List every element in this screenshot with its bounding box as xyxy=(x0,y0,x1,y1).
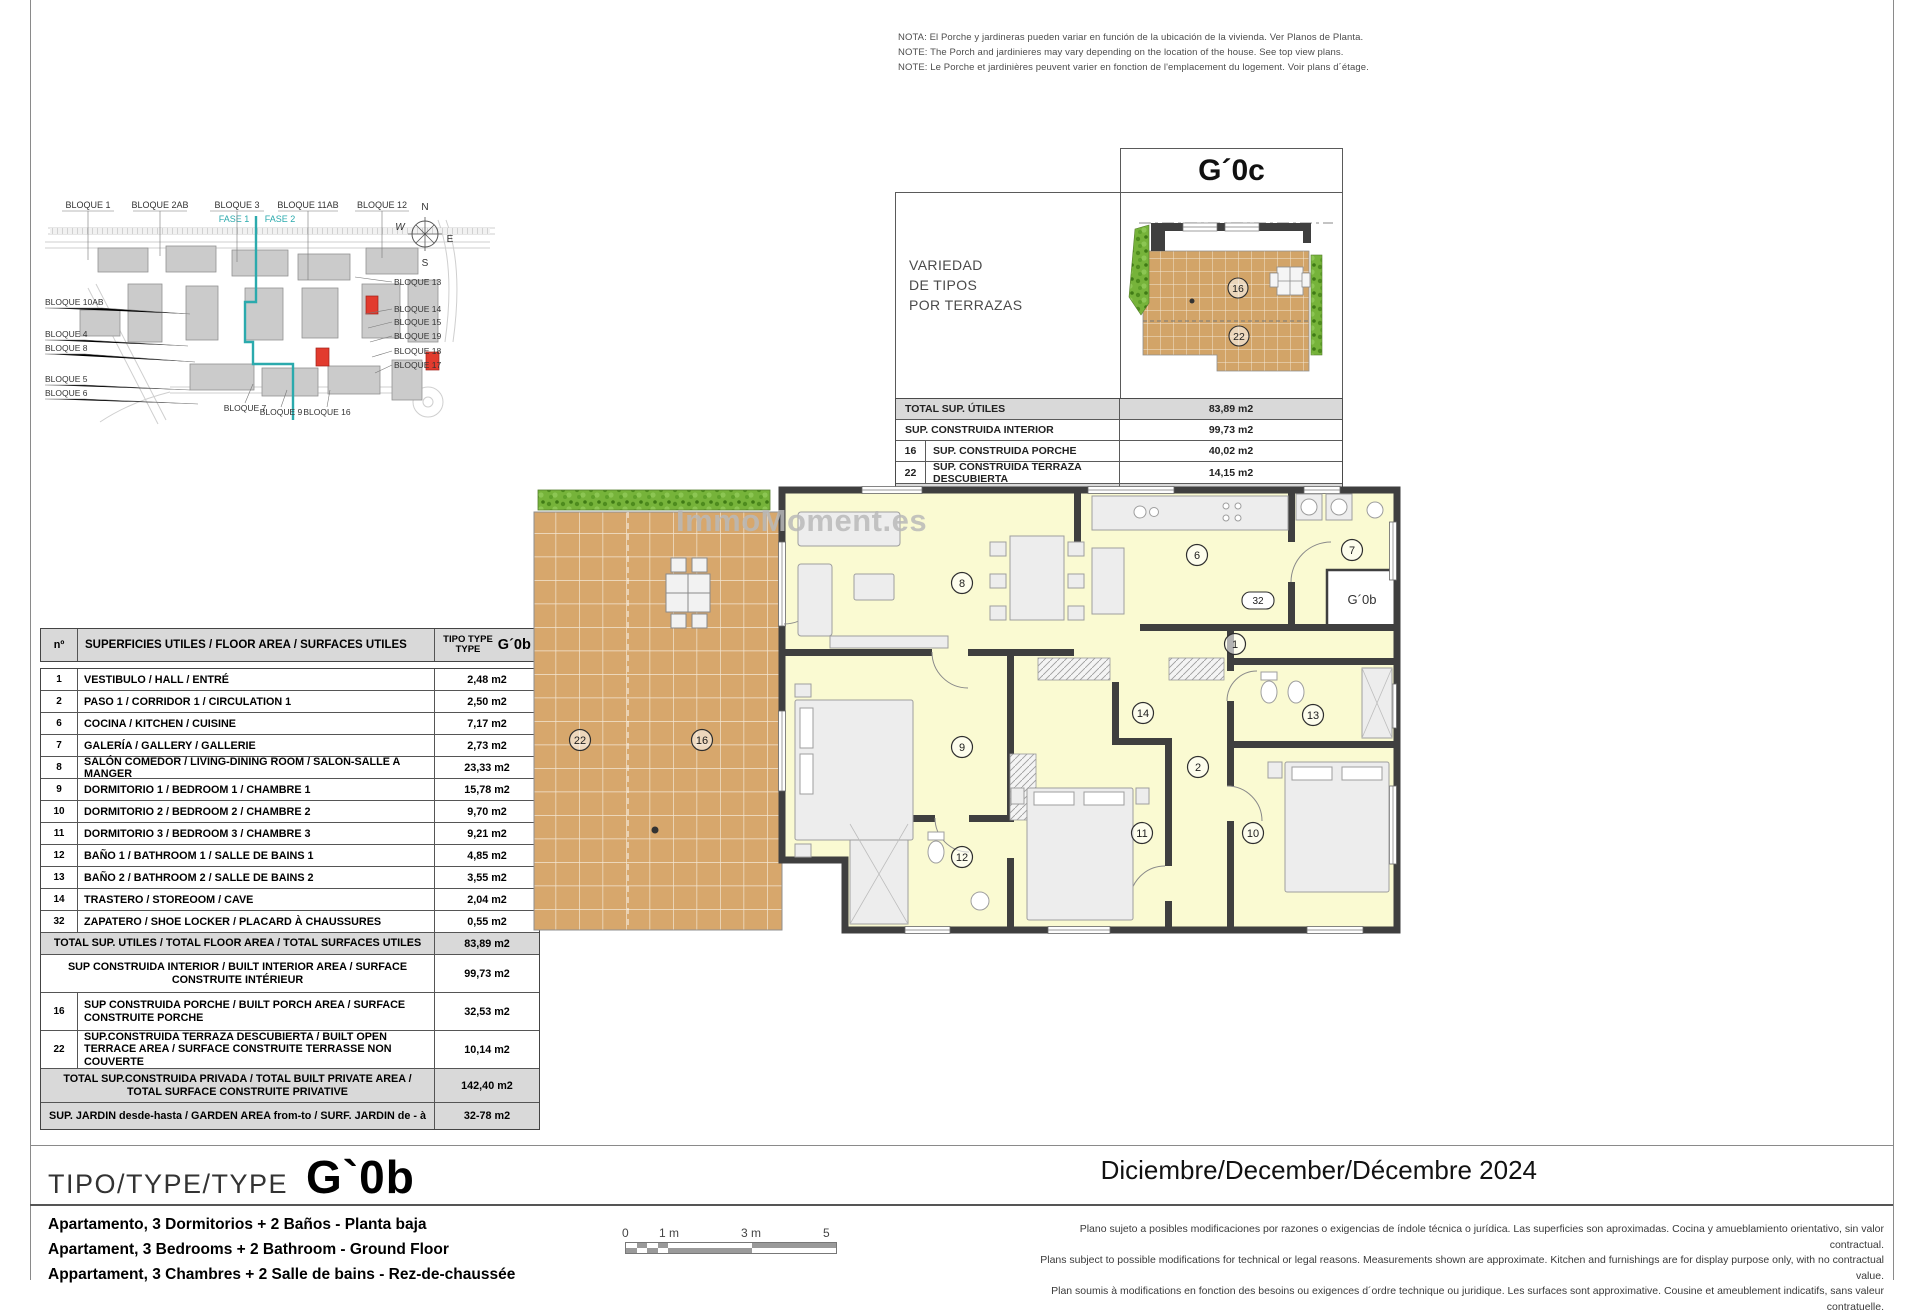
row-num: 7 xyxy=(41,735,78,756)
row-value: 2,50 m2 xyxy=(435,691,539,712)
marker-living: 8 xyxy=(952,573,973,594)
marker-bathroom2: 13 xyxy=(1303,705,1324,726)
variant-title: G´0c xyxy=(1120,148,1343,193)
pillow xyxy=(1292,767,1332,780)
site-plan: FASE 1 FASE 2 BLOQUE 1 BLOQUE 2AB BLOQUE… xyxy=(40,192,510,432)
bloque-3-label: BLOQUE 3 xyxy=(214,200,259,210)
disclaimer-en: Plans subject to possible modifications … xyxy=(1024,1253,1884,1284)
row-label: DORMITORIO 2 / BEDROOM 2 / CHAMBRE 2 xyxy=(78,801,435,822)
svg-text:9: 9 xyxy=(959,742,965,754)
description-en: Apartament, 3 Bedrooms + 2 Bathroom - Gr… xyxy=(48,1237,515,1262)
sheet-frame-left xyxy=(30,0,31,1280)
scale-tick-3m: 3 m xyxy=(741,1226,761,1240)
row-label: TOTAL SUP.CONSTRUIDA PRIVADA / TOTAL BUI… xyxy=(41,1069,435,1102)
description-es: Apartamento, 3 Dormitorios + 2 Baños - P… xyxy=(48,1212,515,1237)
chair xyxy=(990,574,1006,588)
marker-hall: 1 xyxy=(1225,634,1246,655)
row-num: 22 xyxy=(41,1031,78,1068)
bloque-2ab-label: BLOQUE 2AB xyxy=(131,200,188,210)
table-row-total: SUP. JARDIN desde-hasta / GARDEN AREA fr… xyxy=(41,1103,539,1129)
marker-corridor: 2 xyxy=(1188,757,1209,778)
row-label: BAÑO 1 / BATHROOM 1 / SALLE DE BAINS 1 xyxy=(78,845,435,866)
svg-text:8: 8 xyxy=(959,578,965,590)
disclaimer-es: Plano sujeto a posibles modificaciones p… xyxy=(1024,1222,1884,1253)
svg-text:1: 1 xyxy=(1232,639,1238,651)
table-row: 6COCINA / KITCHEN / CUISINE7,17 m2 xyxy=(41,713,539,735)
row-num: 13 xyxy=(41,867,78,888)
sheet-frame-right xyxy=(1893,0,1894,1280)
chair xyxy=(1068,606,1084,620)
row-label: TOTAL SUP. ÚTILES xyxy=(896,399,1120,419)
variant-subtitle-1: VARIEDAD xyxy=(909,255,1022,275)
compass-n: N xyxy=(421,202,428,213)
table-row-total: 16SUP CONSTRUIDA PORCHE / BUILT PORCH AR… xyxy=(41,993,539,1031)
row-label: SUP. CONSTRUIDA PORCHE xyxy=(926,441,1120,461)
bloque-15-label: BLOQUE 15 xyxy=(394,317,442,327)
row-value: 15,78 m2 xyxy=(435,779,539,800)
toilet-bath1 xyxy=(928,841,944,863)
bloque-13-label: BLOQUE 13 xyxy=(394,277,442,287)
mini-dot xyxy=(1190,299,1195,304)
header-label: SUPERFICIES UTILES / FLOOR AREA / SURFAC… xyxy=(78,629,435,661)
bloque-9-label: BLOQUE 9 xyxy=(260,407,303,417)
header-type-l2: TYPE xyxy=(443,645,493,655)
pillow xyxy=(800,754,813,794)
table-row: 11DORMITORIO 3 / BEDROOM 3 / CHAMBRE 39,… xyxy=(41,823,539,845)
table-row: 10DORMITORIO 2 / BEDROOM 2 / CHAMBRE 29,… xyxy=(41,801,539,823)
svg-text:6: 6 xyxy=(1194,550,1200,562)
chair xyxy=(1068,574,1084,588)
variant-subtitle-2: DE TIPOS xyxy=(909,275,1022,295)
bloque-11ab-label: BLOQUE 11AB xyxy=(277,200,338,210)
variant-g0c-box: G´0c VARIEDAD DE TIPOS POR TERRAZAS xyxy=(895,148,1343,505)
row-label: SUP.CONSTRUIDA TERRAZA DESCUBIERTA / BUI… xyxy=(78,1031,435,1068)
table-row-total: TOTAL SUP.CONSTRUIDA PRIVADA / TOTAL BUI… xyxy=(41,1069,539,1103)
porch-notes: NOTA: El Porche y jardineras pueden vari… xyxy=(898,30,1369,75)
row-value: 83,89 m2 xyxy=(435,933,539,954)
nightstand xyxy=(1136,788,1149,804)
mini-planter-right xyxy=(1311,255,1322,355)
row-label: PASO 1 / CORRIDOR 1 / CIRCULATION 1 xyxy=(78,691,435,712)
dryer-drum xyxy=(1331,499,1347,515)
gallery-sink xyxy=(1367,502,1383,518)
table-row: 22 SUP. CONSTRUIDA TERRAZA DESCUBIERTA 1… xyxy=(896,462,1342,484)
bloque-12-label: BLOQUE 12 xyxy=(357,200,407,210)
marker-bedroom1: 9 xyxy=(952,737,973,758)
table-row-total: 22SUP.CONSTRUIDA TERRAZA DESCUBIERTA / B… xyxy=(41,1031,539,1069)
table-row: 8SALÓN COMEDOR / LIVING-DINING ROOM / SA… xyxy=(41,757,539,779)
table-row: 1VESTIBULO / HALL / ENTRÉ2,48 m2 xyxy=(41,669,539,691)
scale-tick-1m: 1 m xyxy=(659,1226,679,1240)
pillow xyxy=(800,708,813,748)
row-num: 11 xyxy=(41,823,78,844)
row-value: 0,55 m2 xyxy=(435,911,539,932)
table-row: 2PASO 1 / CORRIDOR 1 / CIRCULATION 12,50… xyxy=(41,691,539,713)
nightstand xyxy=(1268,762,1282,778)
toilet-tank xyxy=(1261,672,1277,680)
marker-bedroom2: 10 xyxy=(1243,823,1264,844)
bloque-5-label: BLOQUE 5 xyxy=(45,374,88,384)
row-value: 83,89 m2 xyxy=(1120,399,1342,419)
row-value: 32-78 m2 xyxy=(435,1103,539,1129)
bloque-17-label: BLOQUE 17 xyxy=(394,360,442,370)
tv-unit xyxy=(830,636,948,648)
row-num: 6 xyxy=(41,713,78,734)
sofa-side xyxy=(798,564,832,636)
scale-bar-graphic xyxy=(625,1242,837,1254)
row-value: 40,02 m2 xyxy=(1120,441,1342,461)
svg-text:22: 22 xyxy=(574,735,586,747)
row-num: 14 xyxy=(41,889,78,910)
row-num: 16 xyxy=(41,993,78,1030)
row-value: 3,55 m2 xyxy=(435,867,539,888)
svg-text:32: 32 xyxy=(1252,596,1264,607)
table-row: SUP. CONSTRUIDA INTERIOR 99,73 m2 xyxy=(896,420,1342,441)
nightstand xyxy=(1011,788,1024,804)
row-value: 9,70 m2 xyxy=(435,801,539,822)
hob-burner xyxy=(1223,515,1229,521)
row-value: 32,53 m2 xyxy=(435,993,539,1030)
marker-porch: 16 xyxy=(692,730,713,751)
row-value: 99,73 m2 xyxy=(435,955,539,992)
marker-terrace: 22 xyxy=(570,730,591,751)
watermark: ImmoMoment.es xyxy=(676,503,927,539)
compass-s: S xyxy=(422,258,429,269)
pillow xyxy=(1034,792,1074,805)
coffee-table xyxy=(854,574,894,600)
table-row: 14TRASTERO / STOREOOM / CAVE2,04 m2 xyxy=(41,889,539,911)
variant-subtitle-3: POR TERRAZAS xyxy=(909,295,1022,315)
bloque-10ab-label: BLOQUE 10AB xyxy=(45,297,104,307)
row-label: VESTIBULO / HALL / ENTRÉ xyxy=(78,669,435,690)
row-label: TOTAL SUP. UTILES / TOTAL FLOOR AREA / T… xyxy=(41,933,435,954)
neighbor-unit-notch: G´0b xyxy=(1327,570,1397,626)
kitchen-sink-bowl xyxy=(1150,508,1159,517)
mini-marker-terrace: 22 xyxy=(1233,331,1245,343)
header-num: nº xyxy=(41,629,78,661)
bloque-6-label: BLOQUE 6 xyxy=(45,388,88,398)
row-label: SUP CONSTRUIDA PORCHE / BUILT PORCH AREA… xyxy=(78,993,435,1030)
terrace-dot xyxy=(652,827,659,834)
hob-burner xyxy=(1235,515,1241,521)
row-label: SUP. JARDIN desde-hasta / GARDEN AREA fr… xyxy=(41,1103,435,1129)
row-value: 2,48 m2 xyxy=(435,669,539,690)
marker-gallery: 7 xyxy=(1342,540,1363,561)
table-row: TOTAL SUP. ÚTILES 83,89 m2 xyxy=(896,399,1342,420)
row-num: 9 xyxy=(41,779,78,800)
unit-descriptions: Apartamento, 3 Dormitorios + 2 Baños - P… xyxy=(48,1212,515,1287)
table-row: 9DORMITORIO 1 / BEDROOM 1 / CHAMBRE 115,… xyxy=(41,779,539,801)
table-row-total: SUP CONSTRUIDA INTERIOR / BUILT INTERIOR… xyxy=(41,955,539,993)
row-num: 2 xyxy=(41,691,78,712)
row-label: SUP. CONSTRUIDA INTERIOR xyxy=(896,420,1120,440)
nightstand xyxy=(795,684,811,697)
marker-kitchen: 6 xyxy=(1187,545,1208,566)
washer-drum xyxy=(1301,499,1317,515)
row-label: COCINA / KITCHEN / CUISINE xyxy=(78,713,435,734)
row-num: 10 xyxy=(41,801,78,822)
bloque-1-label: BLOQUE 1 xyxy=(65,200,110,210)
bloque-18-label: BLOQUE 18 xyxy=(394,346,442,356)
row-label: SALÓN COMEDOR / LIVING-DINING ROOM / SAL… xyxy=(78,757,435,778)
svg-text:11: 11 xyxy=(1136,828,1147,840)
titleblock-mid-rule xyxy=(30,1204,1893,1206)
plan-sheet: { "notes": { "es": "NOTA: El Porche y ja… xyxy=(0,0,1920,1280)
variant-mini-plan: 16 22 xyxy=(1121,193,1342,398)
header-type-code: G´0b xyxy=(498,637,531,653)
site-top-labels: BLOQUE 1 BLOQUE 2AB BLOQUE 3 BLOQUE 11AB… xyxy=(65,200,407,210)
svg-text:10: 10 xyxy=(1247,828,1259,840)
terrace-tiles xyxy=(534,512,782,930)
svg-text:7: 7 xyxy=(1349,545,1355,557)
titleblock-top-rule xyxy=(30,1145,1893,1146)
toilet xyxy=(1261,681,1277,703)
header-type: TIPO TYPE TYPE G´0b xyxy=(435,629,539,661)
floor-plan: G´0b xyxy=(532,486,1402,934)
nightstand xyxy=(795,844,811,857)
row-value: 14,15 m2 xyxy=(1120,462,1342,483)
table-row: 12BAÑO 1 / BATHROOM 1 / SALLE DE BAINS 1… xyxy=(41,845,539,867)
chair xyxy=(990,542,1006,556)
bloque-19-label: BLOQUE 19 xyxy=(394,331,442,341)
note-es: NOTA: El Porche y jardineras pueden vari… xyxy=(898,30,1369,45)
table-row: 7GALERÍA / GALLERY / GALLERIE2,73 m2 xyxy=(41,735,539,757)
row-value: 142,40 m2 xyxy=(435,1069,539,1102)
surfaces-table-body: 1VESTIBULO / HALL / ENTRÉ2,48 m2 2PASO 1… xyxy=(40,668,540,1130)
type-code: G`0b xyxy=(306,1150,415,1204)
disclaimer-fr: Plan soumis à modifications en fonction … xyxy=(1024,1284,1884,1315)
row-value: 99,73 m2 xyxy=(1120,420,1342,440)
row-num: 12 xyxy=(41,845,78,866)
scale-tick-0: 0 xyxy=(622,1226,629,1240)
row-label: GALERÍA / GALLERY / GALLERIE xyxy=(78,735,435,756)
row-label: BAÑO 2 / BATHROOM 2 / SALLE DE BAINS 2 xyxy=(78,867,435,888)
fase1-label: FASE 1 xyxy=(219,214,250,224)
row-label: SUP. CONSTRUIDA TERRAZA DESCUBIERTA xyxy=(926,462,1120,483)
pillow xyxy=(1084,792,1124,805)
row-label: DORMITORIO 3 / BEDROOM 3 / CHAMBRE 3 xyxy=(78,823,435,844)
row-value: 7,17 m2 xyxy=(435,713,539,734)
row-num: 22 xyxy=(896,462,926,483)
type-title: TIPO/TYPE/TYPE G`0b xyxy=(48,1150,415,1204)
chair xyxy=(1068,542,1084,556)
row-value: 23,33 m2 xyxy=(435,757,539,778)
hob-burner xyxy=(1223,503,1229,509)
compass-e: E xyxy=(447,234,454,245)
table-row: 16 SUP. CONSTRUIDA PORCHE 40,02 m2 xyxy=(896,441,1342,462)
surfaces-table: nº SUPERFICIES UTILES / FLOOR AREA / SUR… xyxy=(40,628,540,1130)
bed-3 xyxy=(1027,788,1133,920)
bloque-8-label: BLOQUE 8 xyxy=(45,343,88,353)
kitchen-counter xyxy=(1092,496,1288,530)
site-bottom-labels: BLOQUE 7 BLOQUE 9 BLOQUE 16 xyxy=(224,403,351,417)
bloque-14-label: BLOQUE 14 xyxy=(394,304,442,314)
fase2-label: FASE 2 xyxy=(265,214,296,224)
washbasin xyxy=(971,892,989,910)
row-num: 8 xyxy=(41,757,78,778)
row-label: DORMITORIO 1 / BEDROOM 1 / CHAMBRE 1 xyxy=(78,779,435,800)
note-en: NOTE: The Porch and jardinieres may vary… xyxy=(898,45,1369,60)
scale-bar: 0 1 m 3 m 5 m xyxy=(625,1226,837,1260)
neighbor-unit-label: G´0b xyxy=(1348,592,1377,607)
table-row: 13BAÑO 2 / BATHROOM 2 / SALLE DE BAINS 2… xyxy=(41,867,539,889)
hob-burner xyxy=(1235,503,1241,509)
row-value: 10,14 m2 xyxy=(435,1031,539,1068)
toilet-tank-bath1 xyxy=(928,832,944,840)
surfaces-table-header: nº SUPERFICIES UTILES / FLOOR AREA / SUR… xyxy=(40,628,540,662)
svg-text:14: 14 xyxy=(1137,708,1149,720)
pillow xyxy=(1342,767,1382,780)
row-num: 32 xyxy=(41,911,78,932)
mini-planter-left xyxy=(1129,225,1149,315)
row-value: 2,73 m2 xyxy=(435,735,539,756)
note-fr: NOTE: Le Porche et jardinières peuvent v… xyxy=(898,60,1369,75)
table-row-total: TOTAL SUP. UTILES / TOTAL FLOOR AREA / T… xyxy=(41,933,539,955)
legal-disclaimer: Plano sujeto a posibles modificaciones p… xyxy=(1024,1222,1884,1315)
description-fr: Appartament, 3 Chambres + 2 Salle de bai… xyxy=(48,1262,515,1287)
variant-mini-plan-cell: 16 22 xyxy=(1120,192,1343,399)
row-num: 16 xyxy=(896,441,926,461)
mini-marker-porch: 16 xyxy=(1232,283,1244,295)
kitchen-island xyxy=(1092,548,1124,614)
bloque-4-label: BLOQUE 4 xyxy=(45,329,88,339)
row-label: SUP CONSTRUIDA INTERIOR / BUILT INTERIOR… xyxy=(41,955,435,992)
bidet xyxy=(1288,681,1304,703)
compass-w: W xyxy=(395,222,406,233)
svg-text:13: 13 xyxy=(1307,710,1319,722)
svg-text:16: 16 xyxy=(696,735,708,747)
bloque-16-label: BLOQUE 16 xyxy=(303,407,351,417)
variant-subtitle-cell: VARIEDAD DE TIPOS POR TERRAZAS xyxy=(895,192,1121,399)
row-value: 9,21 m2 xyxy=(435,823,539,844)
marker-bedroom3: 11 xyxy=(1132,823,1153,844)
marker-shoe-locker: 32 xyxy=(1242,592,1274,609)
bed-2 xyxy=(1285,762,1389,892)
row-label: TRASTERO / STOREOOM / CAVE xyxy=(78,889,435,910)
chair xyxy=(990,606,1006,620)
row-value: 4,85 m2 xyxy=(435,845,539,866)
svg-text:12: 12 xyxy=(956,852,968,864)
table-row: 32ZAPATERO / SHOE LOCKER / PLACARD À CHA… xyxy=(41,911,539,933)
marker-bathroom1: 12 xyxy=(952,847,973,868)
date-label: Diciembre/December/Décembre 2024 xyxy=(1101,1155,1537,1186)
kitchen-sink xyxy=(1134,506,1146,518)
row-label: ZAPATERO / SHOE LOCKER / PLACARD À CHAUS… xyxy=(78,911,435,932)
type-label: TIPO/TYPE/TYPE xyxy=(48,1169,288,1200)
row-num: 1 xyxy=(41,669,78,690)
row-value: 2,04 m2 xyxy=(435,889,539,910)
marker-storeroom: 14 xyxy=(1133,703,1154,724)
dining-table xyxy=(1010,536,1064,620)
svg-text:2: 2 xyxy=(1195,762,1201,774)
